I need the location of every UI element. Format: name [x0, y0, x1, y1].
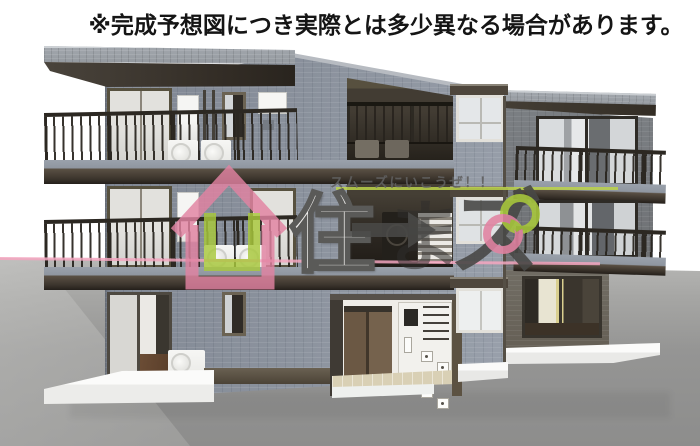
recessed-ac-left	[355, 140, 379, 158]
awning-window-3f	[456, 95, 504, 142]
plinth-band	[204, 368, 350, 384]
floor-band-2f	[44, 267, 454, 290]
awning-window-1f	[456, 288, 504, 333]
rendering-canvas: スムーズにいこうぜ！！ 住 ま ズ ※完成予想図につき実際とは多少異なる場合があ…	[0, 0, 700, 446]
mailbox-door	[437, 398, 449, 409]
awning-window-3f-mullion-h	[459, 122, 501, 124]
recessed-balcony-3f-railing	[347, 102, 453, 144]
entrance	[330, 294, 462, 402]
right-wing	[496, 88, 686, 366]
ac-unit-2f-a	[204, 245, 234, 269]
wing-window-1f	[522, 276, 602, 338]
mail-slots	[423, 306, 449, 346]
awning-window-3f-mullion-v	[480, 98, 482, 139]
awning-2f	[450, 186, 508, 197]
corner-downpipe	[503, 96, 506, 362]
window-1f-narrow	[222, 292, 246, 336]
wing-window-1f-floor	[525, 323, 599, 335]
window-1f-sliding-door-open	[107, 292, 172, 378]
disclaimer-text: ※完成予想図につき実際とは多少異なる場合があります。	[72, 6, 700, 40]
entrance-door	[344, 306, 392, 378]
ac-box-2f-fan	[386, 224, 408, 246]
meter-box	[404, 337, 412, 353]
recessed-balcony-2f	[347, 184, 453, 270]
ac-unit-2f-b	[236, 245, 266, 269]
mailbox-door	[421, 351, 433, 362]
ac-box-2f	[382, 212, 409, 262]
door-edge	[137, 295, 140, 375]
floor-band-3f	[44, 160, 454, 184]
mailbox-panel	[398, 302, 452, 378]
awning-3f	[450, 84, 508, 95]
awning-window-2f	[456, 197, 504, 244]
awning-window-2f-mullion-h	[459, 224, 501, 226]
awning-window-2f-mullion-v	[480, 200, 482, 241]
intercom-box	[404, 309, 418, 326]
awning-1f	[450, 277, 508, 288]
louver-panel	[417, 212, 453, 264]
awning-window-1f-mullion-v	[480, 291, 482, 330]
recessed-ac-right	[385, 140, 409, 158]
